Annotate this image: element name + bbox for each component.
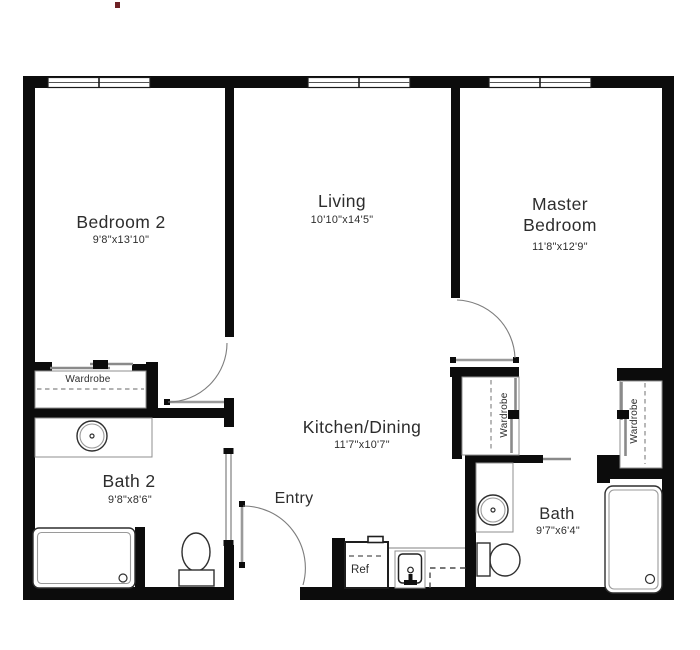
bath2-tub: [33, 528, 135, 588]
exterior-walls: [23, 76, 674, 600]
kitchen-name: Kitchen/Dining: [303, 417, 421, 437]
bath-shower: [605, 486, 662, 593]
bath2-dims: 9'8"x8'6": [108, 494, 152, 506]
bath-vanity: [476, 463, 513, 532]
entry-name: Entry: [275, 490, 314, 507]
master-bedroom-door: [450, 300, 519, 363]
wardrobe-master-east: Wardrobe: [617, 381, 662, 468]
wardrobe-master-west: Wardrobe: [462, 377, 519, 455]
master-dims: 11'8"x12'9": [532, 241, 588, 253]
wardrobe-bedroom2: Wardrobe: [35, 360, 146, 408]
windows: [48, 78, 591, 88]
floor-plan: Wardrobe Wardrobe Wardrobe: [0, 0, 700, 650]
wardrobe-master-west-label: Wardrobe: [499, 392, 510, 437]
bath-dims: 9'7"x6'4": [536, 525, 580, 537]
living-dims: 10'10"x14'5": [311, 214, 374, 226]
bath2-name: Bath 2: [103, 471, 156, 491]
refrigerator: Ref: [345, 537, 388, 589]
bath-toilet: [477, 543, 520, 576]
master-name-line1: Master: [532, 194, 588, 214]
kitchen-sink: [395, 551, 425, 588]
bedroom2-name: Bedroom 2: [76, 212, 165, 232]
living-name: Living: [318, 191, 366, 211]
master-name-line2: Bedroom: [523, 215, 597, 235]
refrigerator-label: Ref: [351, 564, 370, 576]
dishwasher: [430, 568, 466, 588]
kitchen-dims: 11'7"x10'7": [334, 439, 390, 451]
window-master: [489, 78, 591, 88]
window-living: [308, 78, 410, 88]
wardrobe-master-east-label: Wardrobe: [629, 398, 640, 443]
artifact-speck: [115, 2, 120, 8]
floor-plan-drawing: Wardrobe Wardrobe Wardrobe: [0, 0, 700, 650]
bath2-vanity: [35, 418, 152, 457]
bedroom2-door: [164, 343, 230, 405]
entry-door: [239, 501, 305, 585]
bath-name: Bath: [539, 505, 575, 523]
wardrobe-bedroom2-label: Wardrobe: [65, 374, 110, 385]
interior-walls: [23, 88, 662, 600]
bedroom2-dims: 9'8"x13'10": [93, 234, 150, 246]
bath2-pocket-door: [224, 448, 234, 546]
bath2-toilet: [179, 533, 214, 586]
window-bedroom2: [48, 78, 150, 88]
